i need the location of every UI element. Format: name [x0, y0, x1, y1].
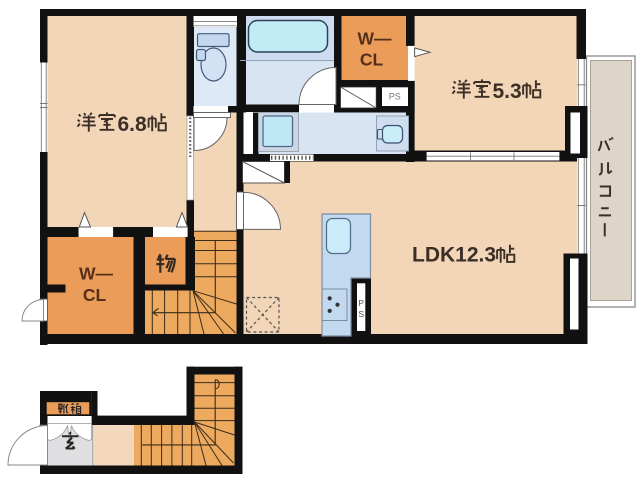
svg-text:S: S — [358, 309, 364, 319]
svg-text:5.3: 5.3 — [493, 80, 522, 103]
svg-text:W—: W— — [79, 264, 114, 284]
svg-text:CL: CL — [360, 50, 384, 70]
svg-text:PS: PS — [389, 92, 401, 102]
svg-text:6.8: 6.8 — [118, 113, 148, 136]
svg-text:CL: CL — [83, 285, 107, 305]
svg-text:W—: W— — [357, 29, 392, 49]
svg-text:P: P — [358, 298, 364, 308]
svg-text:LDK12.3: LDK12.3 — [412, 243, 496, 266]
